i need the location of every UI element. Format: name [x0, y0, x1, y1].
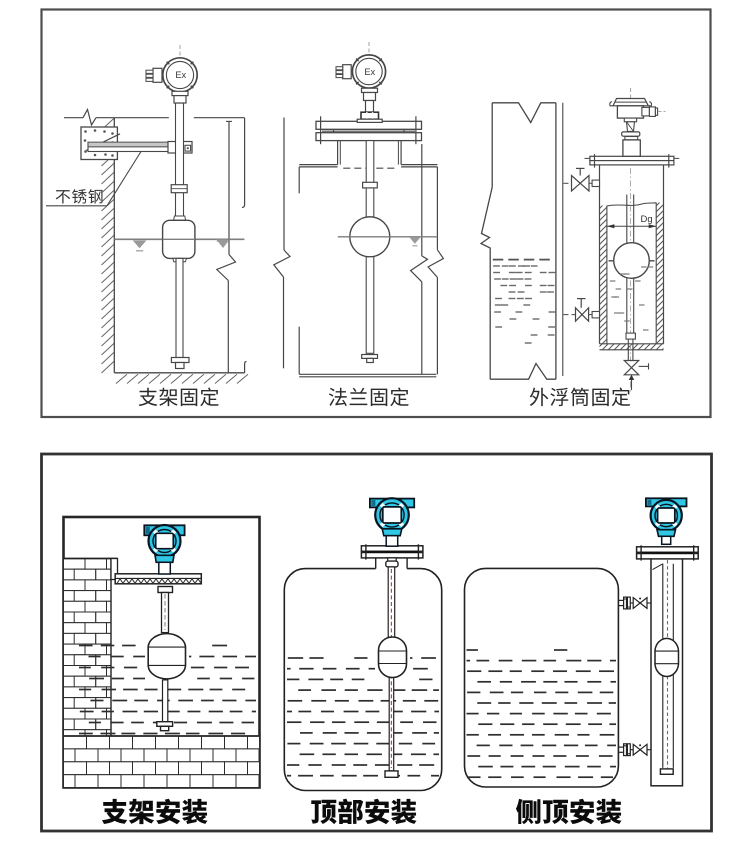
svg-text:Ex: Ex [175, 70, 186, 80]
svg-text:Dg: Dg [641, 214, 653, 225]
svg-text:Ex: Ex [364, 67, 375, 77]
